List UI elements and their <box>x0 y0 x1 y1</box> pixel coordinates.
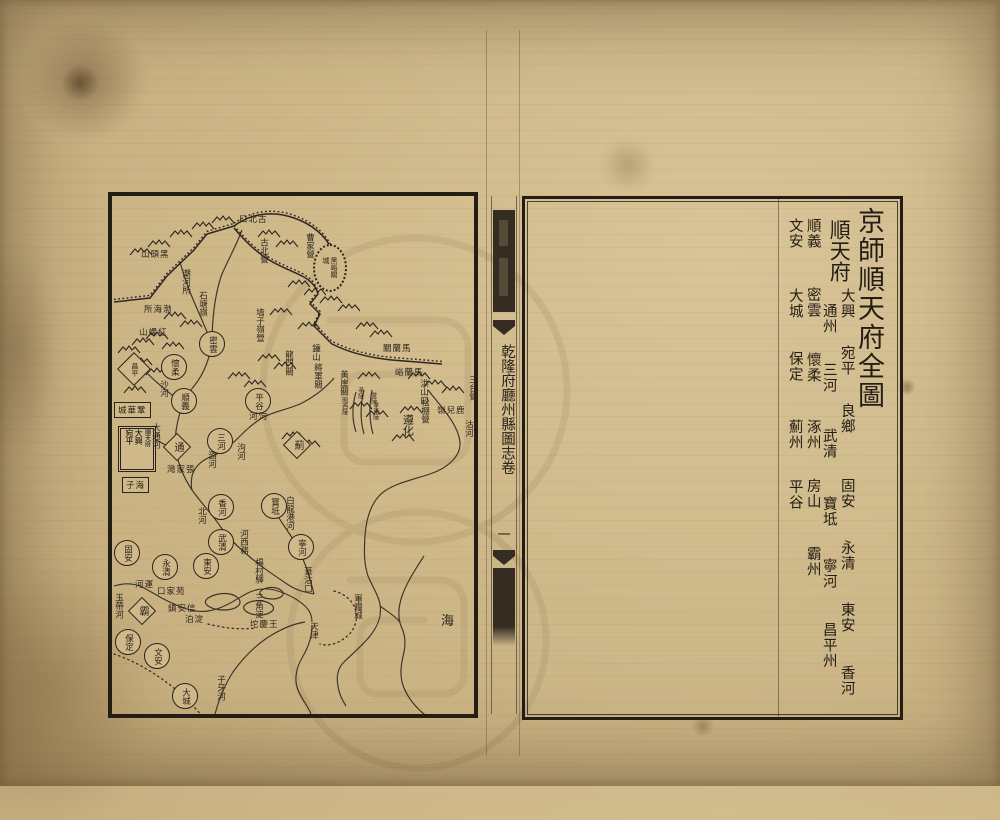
map-label-古北營: 古北營 <box>258 238 268 264</box>
city-circle-懷柔: 懷柔 <box>161 354 187 380</box>
fishtail-mark-top <box>493 320 515 336</box>
map-label-墙子嶺營: 墙子嶺營 <box>254 308 264 342</box>
map-label-黃崖關: 黃崖關 <box>338 370 348 396</box>
map-label-海: 海 <box>441 610 455 629</box>
map-frame: 順天府 大興 宛平 密雲懷柔順義三河平谷香河寶坻寧河武清東安永清固安保定文安大城… <box>108 192 478 718</box>
shuntian-prefecture-map: 順天府 大興 宛平 密雲懷柔順義三河平谷香河寶坻寧河武清東安永清固安保定文安大城… <box>112 196 474 714</box>
map-label-淀泊: 泊淀 <box>185 613 204 625</box>
map-label-馬蘭關: 關蘭馬 <box>383 342 412 354</box>
stain <box>598 140 658 190</box>
fold-crease-left <box>486 30 487 756</box>
county-item-懷柔: 懷柔 <box>803 352 821 383</box>
city-circle-大城: 大城 <box>172 683 198 709</box>
county-item-順義: 順義 <box>803 218 821 249</box>
capital-county-wanping: 宛平 <box>124 429 132 445</box>
fishtail-mark-bottom <box>493 550 515 566</box>
map-label-遵化: 遵化 <box>401 414 413 436</box>
banxin-book-title: 乾隆府廳州縣圖志卷 <box>492 344 516 475</box>
map-label-古北口: 口北古 <box>239 213 268 225</box>
county-item-大興: 大興 <box>837 288 855 319</box>
stain <box>60 65 100 101</box>
city-circle-東安: 東安 <box>193 553 219 579</box>
map-sheet-title: 京師順天府全圖 <box>851 207 885 410</box>
map-label-張家灣: 灣家張 <box>167 463 196 475</box>
city-circle-永清: 永清 <box>152 554 178 580</box>
map-label-大通河: 大通河 <box>150 423 160 449</box>
map-label-孝陵: 孝陵 <box>356 387 363 399</box>
map-label-鍾山: 鍾山 <box>310 344 320 361</box>
column-rule <box>778 199 779 717</box>
county-item-涿州: 涿州 <box>803 419 821 450</box>
map-label-河西務: 河西務 <box>238 529 248 555</box>
map-label-鹿兒嶺: 嶺兒鹿 <box>437 404 466 416</box>
map-label-馬蘭峪: 峪蘭馬 <box>395 366 424 378</box>
map-label-曹家營: 曹家營 <box>304 233 314 259</box>
map-label-渤海所: 所海渤 <box>144 303 173 315</box>
map-label-黑頭山: 山頭黑 <box>141 248 170 260</box>
map-label-楊村驛: 楊村驛 <box>253 558 263 584</box>
county-item-薊州: 薊州 <box>785 419 803 450</box>
map-label-子牙河: 子牙河 <box>215 675 225 701</box>
county-item-良鄉: 良鄉 <box>837 403 855 434</box>
banxin-bottom-bar <box>493 568 515 646</box>
map-label-昭西陵: 昭西陵 <box>340 397 347 415</box>
map-label-泃河: 泃河 <box>235 443 245 460</box>
stain <box>0 240 60 460</box>
walled-oval-黑峪關城: 黑峪關城 <box>313 244 347 292</box>
city-circle-香河: 香河 <box>208 494 234 520</box>
county-item-固安: 固安 <box>837 478 855 509</box>
map-label-沽河: 沽河 <box>463 420 473 437</box>
city-circle-寧河: 寧河 <box>288 534 314 560</box>
scanned-atlas-page: { "colors": {"paper":"#cfb98a","ink":"#2… <box>0 0 1000 786</box>
county-item-昌平州: 昌平州 <box>819 622 837 669</box>
stain <box>20 20 150 140</box>
map-label-洪山口: 洪山口 <box>418 379 428 405</box>
county-item-通州: 通州 <box>819 303 837 334</box>
county-item-寧河: 寧河 <box>819 558 837 589</box>
map-label-白龍港河: 白龍港河 <box>284 496 294 530</box>
map-label-潮河所: 潮河所 <box>180 269 190 295</box>
city-circle-保定: 保定 <box>115 629 141 655</box>
county-item-房山: 房山 <box>803 478 821 509</box>
banxin-column: 乾隆府廳州縣圖志卷 一 <box>491 196 517 714</box>
county-item-東安: 東安 <box>837 602 855 633</box>
map-label-紅螺山: 山螺紅 <box>139 326 168 338</box>
map-label-龍門關: 龍門關 <box>283 350 293 376</box>
county-item-香河: 香河 <box>837 665 855 696</box>
city-circle-順義: 順義 <box>171 388 197 414</box>
county-item-三河: 三河 <box>819 362 837 393</box>
map-label-運河: 河運 <box>135 578 154 590</box>
county-item-平谷: 平谷 <box>785 479 803 510</box>
map-label-王慶坨: 坨慶王 <box>250 618 279 630</box>
county-item-霸州: 霸州 <box>803 546 821 577</box>
map-label-石塘嶺: 石塘嶺 <box>197 291 207 317</box>
map-label-潞河: 潞河 <box>206 451 216 468</box>
county-item-寶坻: 寶坻 <box>819 496 837 527</box>
county-item-大城: 大城 <box>785 288 803 319</box>
county-item-武清: 武清 <box>819 428 837 459</box>
map-label-天津: 天津 <box>308 622 318 639</box>
map-label-三台營: 三台營 <box>467 375 477 401</box>
county-item-密雲: 密雲 <box>803 287 821 318</box>
city-circle-武清: 武清 <box>208 529 234 555</box>
map-label-玉帶河: 玉帶河 <box>113 593 123 619</box>
fold-crease-right <box>519 30 520 756</box>
place-box-海子: 子海 <box>122 477 149 493</box>
county-item-永清: 永清 <box>837 540 855 571</box>
city-circle-文安: 文安 <box>144 643 170 669</box>
map-label-將軍關: 將軍關 <box>312 363 322 389</box>
place-box-鞏華城: 城華鞏 <box>114 402 151 418</box>
capital-county-daxing: 大興 <box>134 429 142 445</box>
stain <box>930 60 1000 180</box>
capital-prefecture-label: 順天府 <box>143 429 149 447</box>
map-label-沙河: 沙河 <box>158 380 168 397</box>
banxin-volume-number: 一 <box>492 524 516 543</box>
map-label-孝東陵: 孝東陵 <box>371 402 378 420</box>
city-circle-固安: 固安 <box>114 540 140 566</box>
map-label-三角淀: 三角淀 <box>253 593 263 619</box>
map-label-苑家口: 口家苑 <box>157 585 186 597</box>
map-label-軍糧城: 軍糧城 <box>352 594 362 620</box>
map-label-北河: 北河 <box>196 507 206 524</box>
right-page-frame: 京師順天府全圖 順天府 大興宛平良鄉固安永清東安香河通州三河武清寶坻寧河昌平州順… <box>522 196 903 720</box>
city-circle-密雲: 密雲 <box>199 331 225 357</box>
map-label-泃河: 河泃 <box>249 410 268 422</box>
county-item-保定: 保定 <box>785 351 803 382</box>
prefecture-header: 順天府 <box>825 219 852 282</box>
map-label-葦沽口: 葦沽口 <box>302 567 312 593</box>
county-item-文安: 文安 <box>785 218 803 249</box>
county-item-宛平: 宛平 <box>837 345 855 376</box>
banxin-top-bar <box>493 210 515 312</box>
